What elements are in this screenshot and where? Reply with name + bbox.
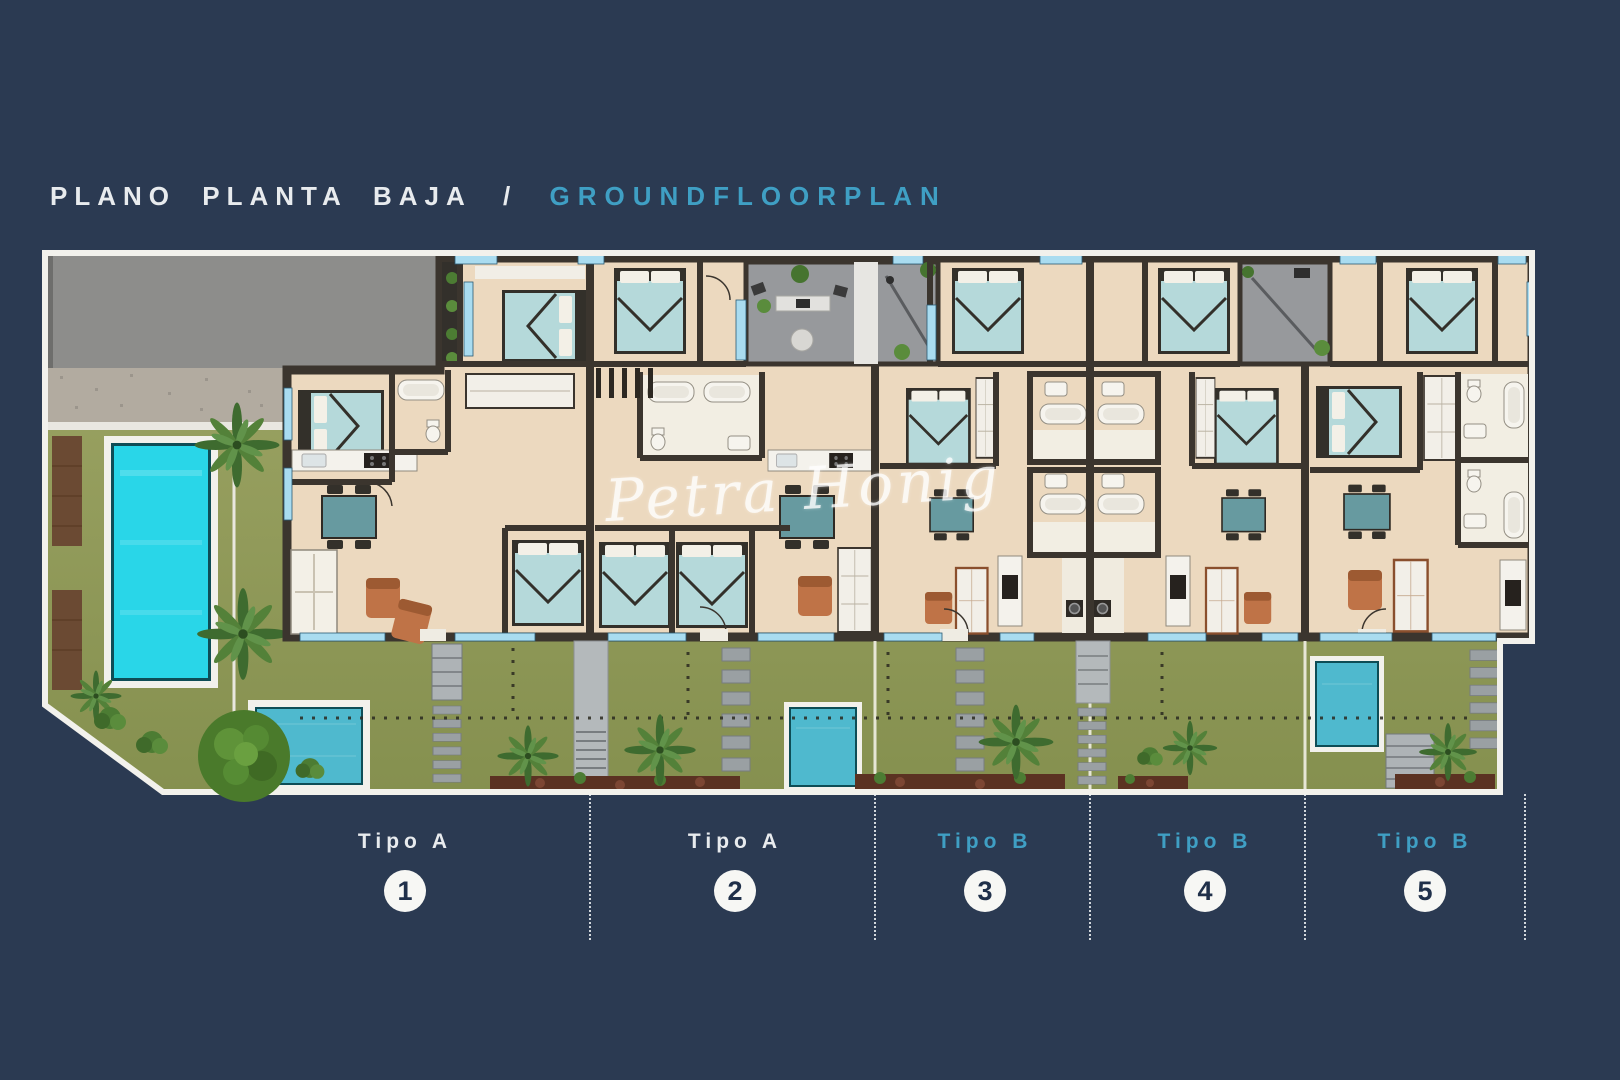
building xyxy=(284,255,1536,645)
unit-separator xyxy=(1304,794,1306,940)
unit-2-label: Tipo A 2 xyxy=(650,830,820,912)
unit-3-number-badge: 3 xyxy=(964,870,1006,912)
unit-5-label: Tipo B 5 xyxy=(1340,830,1510,912)
unit-4-number-badge: 4 xyxy=(1184,870,1226,912)
unit-5-type: Tipo B xyxy=(1340,830,1510,854)
unit-separator xyxy=(589,794,591,940)
unit-separator xyxy=(1089,794,1091,940)
unit-3-label: Tipo B 3 xyxy=(900,830,1070,912)
floor-plan-page: PLANO PLANTA BAJA / GROUNDFLOORPLAN xyxy=(0,0,1620,1080)
unit-1-number-badge: 1 xyxy=(384,870,426,912)
unit-2-number-badge: 2 xyxy=(714,870,756,912)
courtyard-2 xyxy=(1240,262,1330,364)
unit-separator xyxy=(874,794,876,940)
unit-5-number-badge: 5 xyxy=(1404,870,1446,912)
unit-3-type: Tipo B xyxy=(900,830,1070,854)
plunge-pool-2 xyxy=(784,702,862,792)
unit-4-type: Tipo B xyxy=(1120,830,1290,854)
unit-4-label: Tipo B 4 xyxy=(1120,830,1290,912)
unit-1-label: Tipo A 1 xyxy=(320,830,490,912)
plunge-pool-3 xyxy=(1310,656,1384,752)
courtyard-1 xyxy=(746,262,938,364)
unit-separator xyxy=(1524,794,1526,940)
large-tree-icon xyxy=(198,710,290,802)
unit-1-type: Tipo A xyxy=(320,830,490,854)
communal-pool xyxy=(104,436,218,688)
unit-2-type: Tipo A xyxy=(650,830,820,854)
floor-plan-graphic xyxy=(0,0,1620,1080)
